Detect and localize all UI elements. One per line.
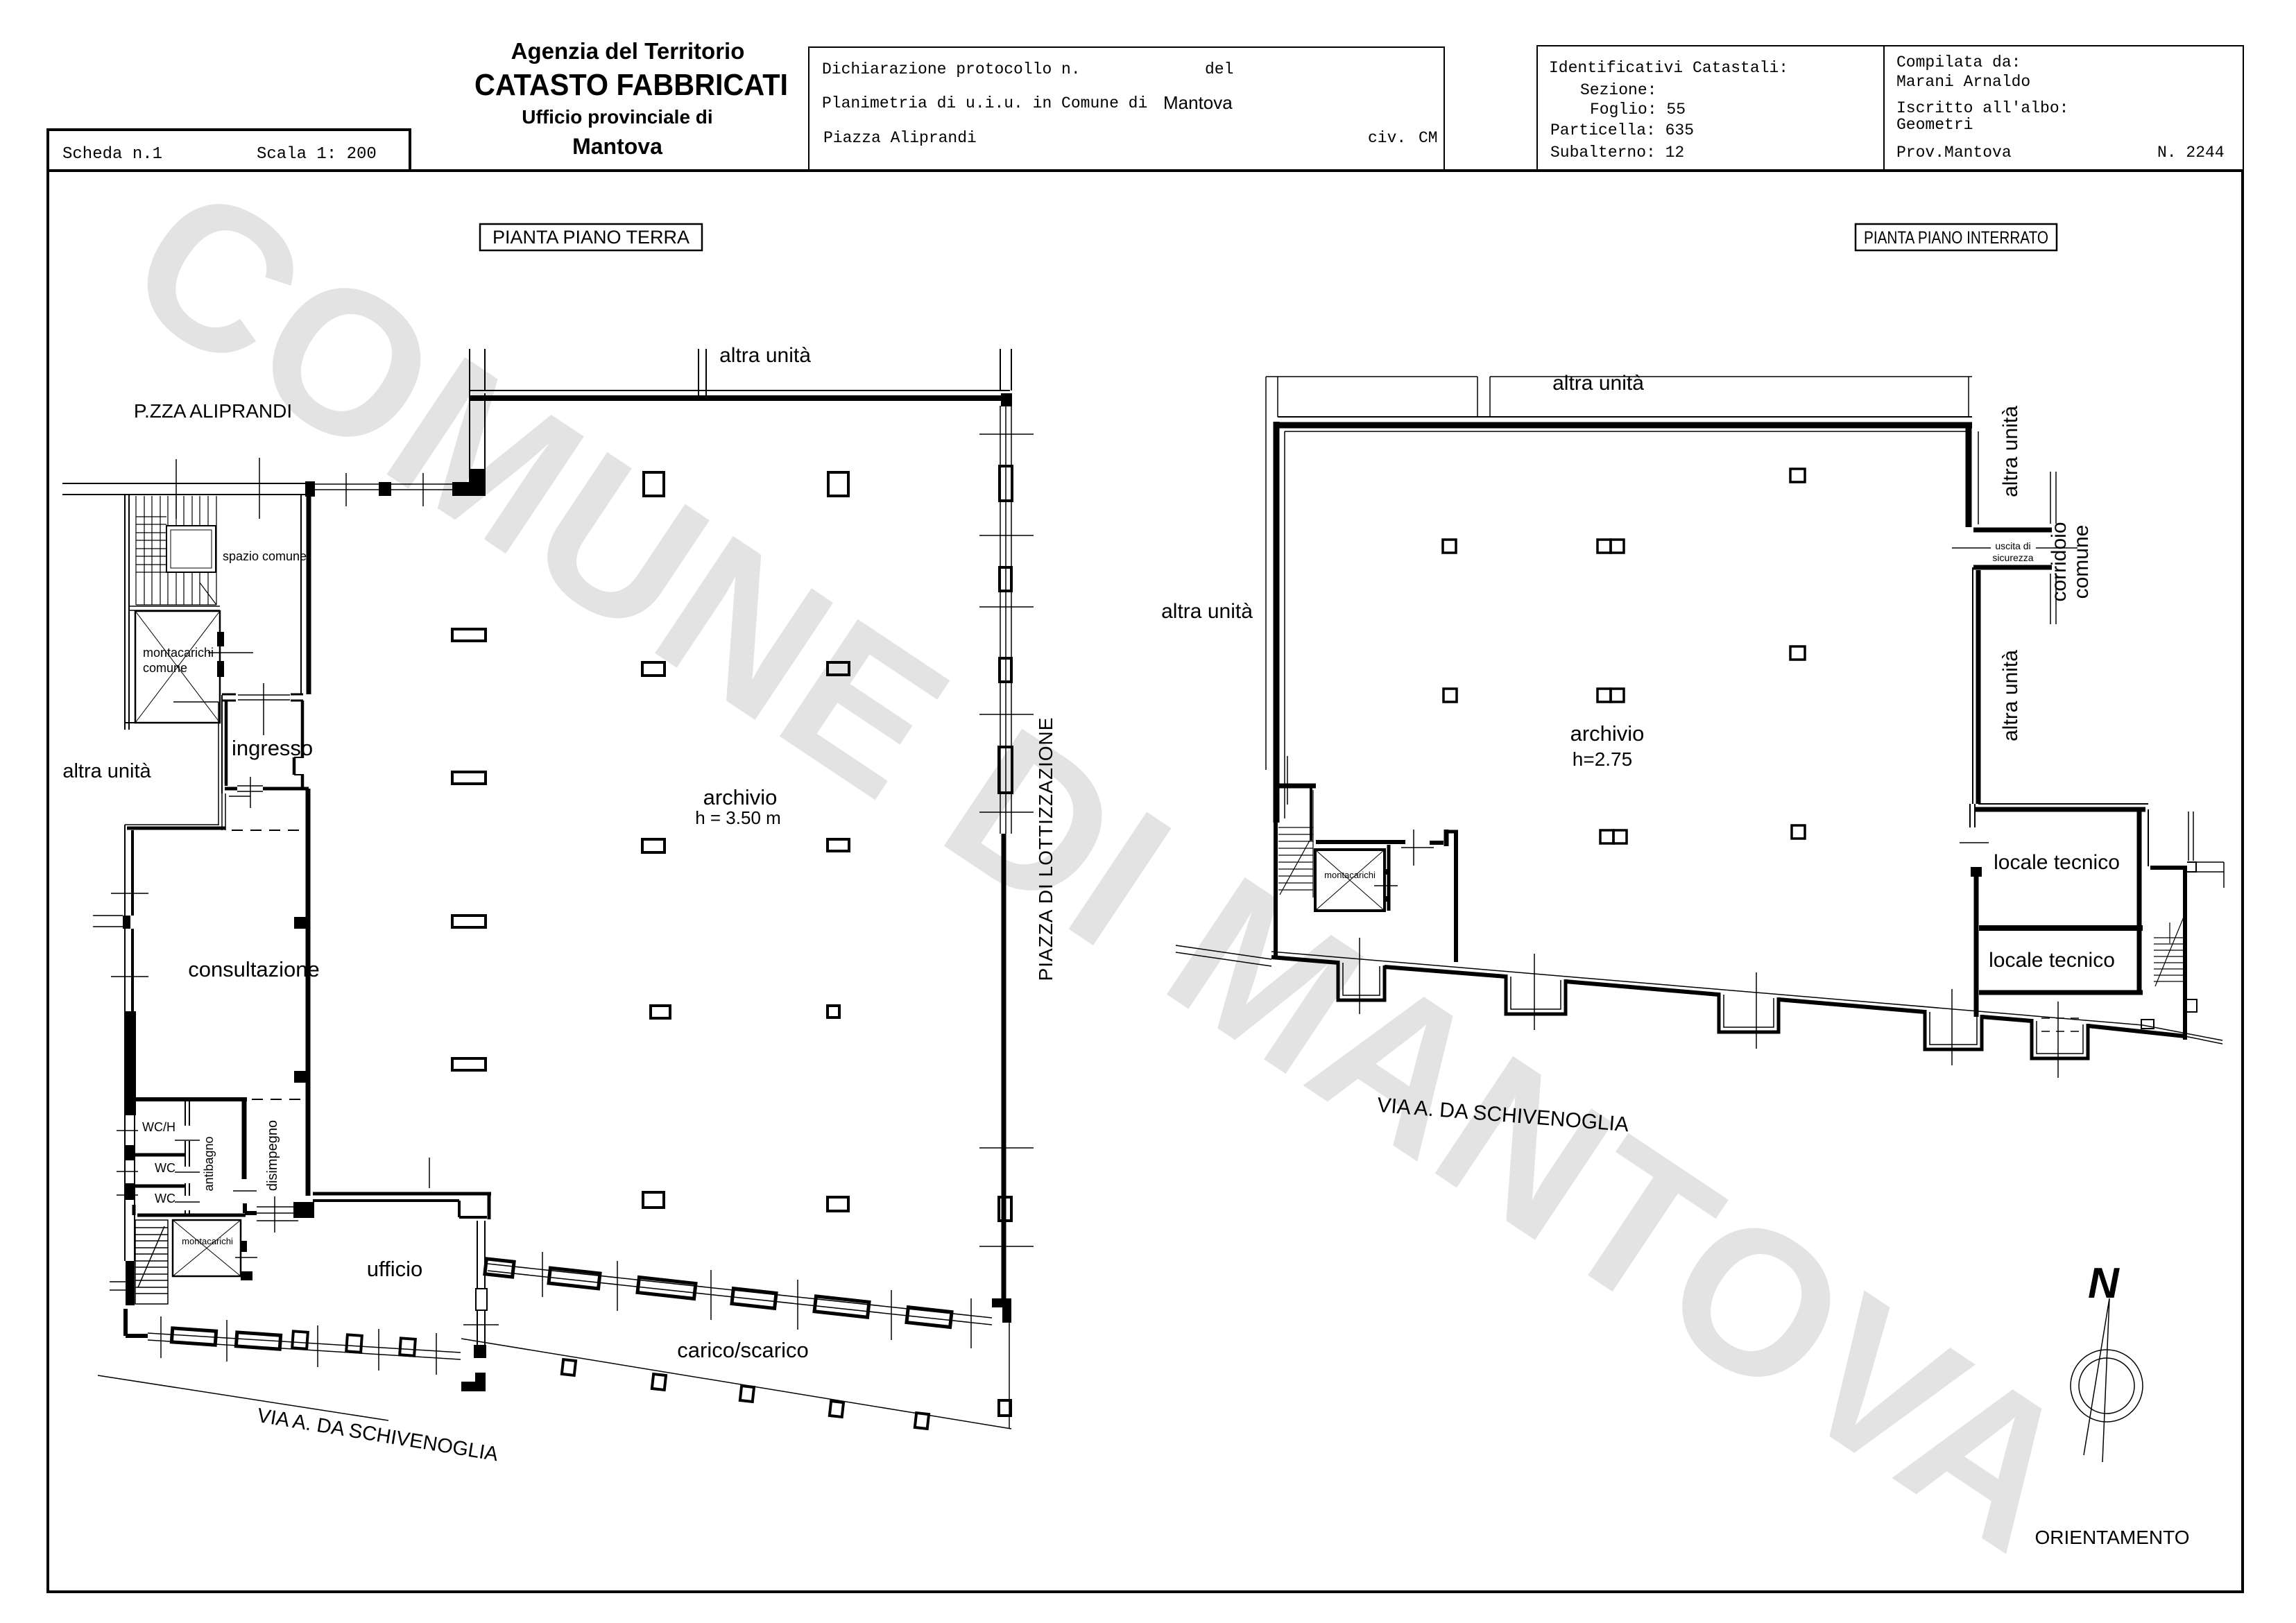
svg-text:h=2.75: h=2.75 (1573, 748, 1632, 770)
svg-text:disimpegno: disimpegno (265, 1120, 280, 1191)
svg-text:uscita di: uscita di (1995, 540, 2030, 551)
svg-text:PIAZZA DI LOTTIZZAZIONE: PIAZZA DI LOTTIZZAZIONE (1035, 717, 1056, 981)
svg-text:ORIENTAMENTO: ORIENTAMENTO (2035, 1527, 2190, 1548)
svg-text:N: N (2088, 1260, 2120, 1307)
svg-text:altra unità: altra unità (1999, 406, 2022, 497)
svg-text:Identificativi Catastali:: Identificativi Catastali: (1549, 59, 1788, 77)
svg-text:altra unità: altra unità (1999, 650, 2022, 741)
svg-text:montacarichi: montacarichi (1324, 870, 1376, 880)
svg-text:Scala 1: 200: Scala 1: 200 (257, 145, 377, 164)
svg-text:sicurezza: sicurezza (1992, 552, 2033, 563)
svg-text:altra unità: altra unità (1161, 600, 1253, 623)
svg-text:civ.: civ. (1368, 129, 1406, 147)
svg-text:montacarichi: montacarichi (143, 646, 214, 660)
svg-text:antibagno: antibagno (202, 1136, 216, 1191)
svg-text:Compilata da:: Compilata da: (1896, 53, 2021, 71)
svg-text:Mantova: Mantova (572, 134, 662, 159)
svg-text:locale tecnico: locale tecnico (1994, 851, 2120, 874)
svg-text:del: del (1205, 60, 1233, 78)
svg-text:comune: comune (143, 661, 187, 675)
svg-text:N. 2244: N. 2244 (2157, 144, 2225, 162)
svg-text:Iscritto all'albo:: Iscritto all'albo: (1896, 99, 2068, 117)
svg-text:ufficio: ufficio (367, 1257, 422, 1281)
svg-text:consultazione: consultazione (188, 957, 320, 981)
svg-text:locale tecnico: locale tecnico (1989, 949, 2115, 972)
svg-text:altra unità: altra unità (62, 760, 151, 782)
svg-text:altra unità: altra unità (1552, 372, 1644, 395)
svg-text:Mantova: Mantova (1163, 92, 1233, 113)
svg-text:ingresso: ingresso (232, 736, 313, 760)
svg-text:CM: CM (1419, 129, 1438, 147)
svg-text:Scheda n.1: Scheda n.1 (62, 145, 162, 164)
svg-text:Planimetria di u.i.u. in Comun: Planimetria di u.i.u. in Comune di (822, 94, 1147, 112)
svg-text:montacarichi: montacarichi (182, 1236, 233, 1246)
svg-text:PIANTA PIANO TERRA: PIANTA PIANO TERRA (492, 227, 689, 248)
svg-text:spazio comune: spazio comune (223, 549, 307, 563)
svg-text:archivio: archivio (703, 785, 778, 809)
svg-text:archivio: archivio (1570, 721, 1645, 746)
svg-text:Subalterno: 12: Subalterno: 12 (1550, 144, 1684, 162)
svg-text:h = 3.50 m: h = 3.50 m (695, 807, 781, 828)
svg-text:Agenzia del Territorio: Agenzia del Territorio (511, 38, 745, 64)
svg-text:Geometri: Geometri (1896, 116, 1973, 134)
svg-text:Particella: 635: Particella: 635 (1550, 121, 1694, 139)
svg-text:carico/scarico: carico/scarico (677, 1338, 809, 1362)
svg-text:Marani Arnaldo: Marani Arnaldo (1896, 73, 2030, 91)
svg-text:Sezione:: Sezione: (1580, 81, 1656, 99)
svg-text:comune: comune (2070, 525, 2093, 599)
svg-text:P.ZZA ALIPRANDI: P.ZZA ALIPRANDI (134, 400, 292, 422)
svg-text:CATASTO FABBRICATI: CATASTO FABBRICATI (474, 68, 788, 102)
svg-text:WC/H: WC/H (142, 1120, 175, 1134)
svg-text:Foglio: 55: Foglio: 55 (1590, 101, 1686, 119)
svg-text:WC: WC (155, 1192, 175, 1205)
svg-text:PIANTA PIANO INTERRATO: PIANTA PIANO INTERRATO (1864, 228, 2048, 248)
svg-text:Prov.Mantova: Prov.Mantova (1896, 144, 2012, 162)
svg-text:Ufficio provinciale di: Ufficio provinciale di (522, 106, 712, 128)
svg-text:Dichiarazione protocollo n.: Dichiarazione protocollo n. (822, 60, 1081, 78)
svg-text:corridoio: corridoio (2048, 522, 2071, 601)
svg-text:WC: WC (155, 1161, 175, 1175)
svg-text:Piazza Aliprandi: Piazza Aliprandi (823, 129, 977, 147)
svg-text:altra unità: altra unità (719, 344, 811, 367)
